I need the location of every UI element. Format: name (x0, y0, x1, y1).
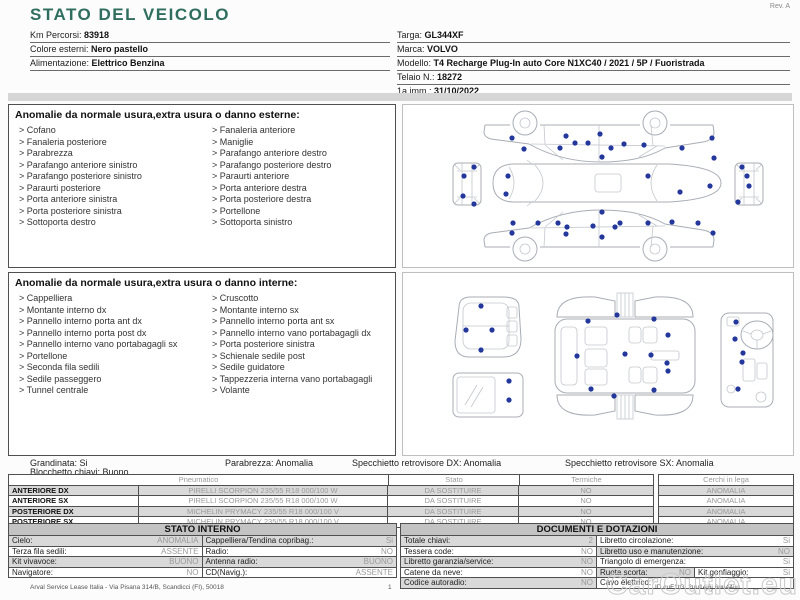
field-value: Nero pastello (91, 44, 148, 54)
anomaly-item: Cruscotto (212, 293, 393, 305)
cell-value: NO (581, 547, 593, 556)
damage-dot (588, 386, 593, 391)
anomaly-item: Porta anteriore destra (212, 183, 393, 195)
tire-cell: NO (519, 486, 653, 496)
footer-company: Arval Service Lease Italia - Via Pisana … (30, 584, 224, 591)
tire-header-cell: Termiche (520, 475, 653, 485)
tire-cell: POSTERIORE DX (9, 507, 139, 517)
anomaly-item: Parabrezza (19, 148, 200, 160)
damage-dot (648, 352, 653, 357)
cell-value: NO (778, 547, 790, 556)
wheels-row: ANOMALIA (659, 485, 793, 496)
cell-label: Kit vivavoce: (12, 557, 57, 566)
wheels-row: ANOMALIA (659, 506, 793, 517)
cell-label: CD(Navig.): (206, 568, 248, 577)
exterior-anomalies-box: Anomalie da normale usura,extra usura o … (8, 104, 396, 268)
damage-dot (489, 327, 494, 332)
field-value: T4 Recharge Plug-In auto Core N1XC40 / 2… (434, 58, 705, 68)
cell-label: Cavo elettrico: (600, 578, 651, 587)
anomaly-item: Cappelliera (19, 293, 200, 305)
tire-header-cell: Pneumatico (9, 475, 389, 485)
field-label: Colore esterni: (30, 44, 91, 54)
damage-dot (535, 220, 540, 225)
damage-dot (710, 230, 715, 235)
interior-state-title: STATO INTERNO (9, 524, 396, 536)
exterior-anomalies-list-left: CofanoFanaleria posterioreParabrezzaPara… (9, 125, 202, 229)
cell-value: ASSENTE (356, 568, 393, 577)
label-value-cell: Kit gonfiaggio:Si (695, 568, 793, 578)
cell-label: Ruota scorta: (600, 568, 648, 577)
damage-dot (677, 189, 682, 194)
tire-cell: MICHELIN PRYMACY 235/55 R18 000/100 V (139, 507, 388, 517)
anomaly-item: Sottoporta destro (19, 217, 200, 229)
revision-label: Rev. A (770, 3, 790, 10)
vehicle-field: Colore esterni: Nero pastello (30, 43, 390, 57)
tire-cell: ANTERIORE SX (9, 496, 139, 506)
damage-dot (617, 220, 622, 225)
vehicle-field: Alimentazione: Elettrico Benzina (30, 57, 390, 71)
cell-value: NO (581, 578, 593, 587)
damage-dot (599, 209, 604, 214)
anomaly-item: Portellone (212, 206, 393, 218)
vehicle-info-left: Km Percorsi: 83918Colore esterni: Nero p… (30, 29, 390, 71)
label-value-cell: Libretto uso e manutenzione:NO (597, 547, 793, 557)
damage-dot (509, 230, 514, 235)
field-value: GL344XF (425, 30, 464, 40)
anomaly-item: Pannello interno vano portabagagli dx (212, 328, 393, 340)
cell-value: NO (581, 568, 593, 577)
cell-label: Kit gonfiaggio: (698, 568, 749, 577)
damage-dot (557, 145, 562, 150)
cell-label: Libretto garanzia/service: (404, 557, 493, 566)
alloy-wheels-table: Cerchi in legaANOMALIAANOMALIAANOMALIAAN… (658, 474, 794, 528)
label-value-cell: Codice autoradio:NO (401, 578, 597, 588)
anomaly-item: Porta anteriore sinistra (19, 194, 200, 206)
field-label: Km Percorsi: (30, 30, 84, 40)
damage-dot (471, 201, 476, 206)
damage-dot (563, 231, 568, 236)
damage-dot (645, 220, 650, 225)
cell-value: Si (783, 568, 790, 577)
damage-dot (651, 387, 656, 392)
status-field: Parabrezza: Anomalia (225, 458, 313, 468)
damage-dot (478, 347, 483, 352)
damage-dot (612, 224, 617, 229)
cell-label: Codice autoradio: (404, 578, 467, 587)
anomaly-item: Pannello interno vano portabagagli sx (19, 339, 200, 351)
tire-cell: ANTERIORE DX (9, 486, 139, 496)
damage-dot (590, 223, 595, 228)
anomaly-item: Paraurti posteriore (19, 183, 200, 195)
cell-label: Radio: (206, 547, 229, 556)
cell-value: 2 (589, 536, 593, 545)
cell-value: BUONO (169, 557, 198, 566)
interior-anomalies-list-right: CruscottoMontante interno sxPannello int… (202, 293, 395, 397)
tire-cell: DA SOSTITUIRE (388, 486, 519, 496)
table-row: Cielo:ANOMALIACappelliera/Tendina coprib… (9, 536, 396, 547)
tire-cell: DA SOSTITUIRE (388, 507, 519, 517)
damage-dot (665, 332, 670, 337)
cell-label: Navigatore: (12, 568, 53, 577)
page-title: STATO DEL VEICOLO (30, 5, 230, 25)
anomaly-item: Parafango posteriore sinistro (19, 171, 200, 183)
interior-damage-diagram (402, 272, 794, 456)
wheels-cell: ANOMALIA (659, 496, 793, 506)
anomaly-item: Parafango posteriore destro (212, 160, 393, 172)
damage-dot (572, 140, 577, 145)
damage-dot (505, 173, 510, 178)
damage-dot (510, 220, 515, 225)
field-value: 83918 (84, 30, 109, 40)
damage-dot (622, 351, 627, 356)
cell-value: ANOMALIA (157, 536, 198, 545)
field-value: Elettrico Benzina (92, 58, 165, 68)
cell-label: Totale chiavi: (404, 536, 450, 545)
label-value-cell: Cappelliera/Tendina copribag.:Si (203, 536, 397, 546)
damage-dot (503, 191, 508, 196)
damage-dot (460, 193, 465, 198)
wheels-cell: ANOMALIA (659, 507, 793, 517)
label-value-cell: Libretto garanzia/service:NO (401, 557, 597, 567)
damage-dot (564, 224, 569, 229)
cell-value: NO (679, 568, 691, 577)
cell-label: Cappelliera/Tendina copribag.: (206, 536, 314, 545)
tire-cell: PIRELLI SCORPION 235/55 R18 000/100 W (139, 486, 388, 496)
damage-dot (461, 173, 466, 178)
anomaly-item: Parafango anteriore sinistro (19, 160, 200, 172)
field-value: 18272 (437, 72, 462, 82)
label-value-cell: Tessera code:NO (401, 547, 597, 557)
cell-label: Triangolo di emergenza: (600, 557, 686, 566)
tire-row: POSTERIORE DXMICHELIN PRYMACY 235/55 R18… (9, 506, 653, 517)
status-field: Specchietto retrovisore DX: Anomalia (352, 458, 501, 468)
table-row: Libretto garanzia/service:NOTriangolo di… (401, 557, 793, 568)
damage-dot (509, 135, 514, 140)
damage-dot (471, 164, 476, 169)
anomaly-item: Pannello interno porta ant dx (19, 316, 200, 328)
cell-label: Antenna radio: (206, 557, 258, 566)
cell-value: Si (783, 536, 790, 545)
vehicle-report-page: Rev. A STATO DEL VEICOLO Km Percorsi: 83… (0, 0, 800, 600)
tire-row: ANTERIORE SXPIRELLI SCORPION 235/55 R18 … (9, 495, 653, 506)
damage-dot (608, 145, 613, 150)
damage-dot (597, 131, 602, 136)
damage-dot (555, 220, 560, 225)
damage-dot (621, 141, 626, 146)
damage-dot (665, 368, 670, 373)
anomaly-item: Fanaleria anteriore (212, 125, 393, 137)
damage-dot (574, 353, 579, 358)
label-value-cell: Kit vivavoce:BUONO (9, 557, 203, 567)
damage-dot (707, 183, 712, 188)
table-row: Catene da neve:NORuota scorta:NOKit gonf… (401, 568, 793, 579)
damage-dot (735, 199, 740, 204)
anomaly-item: Porta posteriore sinistra (19, 206, 200, 218)
exterior-anomalies-title: Anomalie da normale usura,extra usura o … (15, 109, 389, 121)
anomaly-item: Sottoporta sinistro (212, 217, 393, 229)
anomaly-item: Tunnel centrale (19, 385, 200, 397)
interior-anomalies-title: Anomalie da normale usura,extra usura o … (15, 277, 389, 289)
label-value-cell: Libretto circolazione:Si (597, 536, 793, 546)
table-row: Kit vivavoce:BUONOAntenna radio:BUONO (9, 557, 396, 568)
damage-dot (744, 173, 749, 178)
label-value-cell: Ruota scorta:NO (597, 568, 695, 578)
cell-label: Catene da neve: (404, 568, 463, 577)
wheels-row: ANOMALIA (659, 495, 793, 506)
damage-dot (739, 164, 744, 169)
damage-dot (679, 145, 684, 150)
damage-dot (645, 173, 650, 178)
anomaly-item: Montante interno sx (212, 305, 393, 317)
tire-cell: DA SOSTITUIRE (388, 496, 519, 506)
status-field: Specchietto retrovisore SX: Anomalia (565, 458, 714, 468)
cell-value: Si (783, 557, 790, 566)
label-value-cell: Totale chiavi:2 (401, 536, 597, 546)
tire-row: ANTERIORE DXPIRELLI SCORPION 235/55 R18 … (9, 485, 653, 496)
cell-label: Terza fila sedili: (12, 547, 67, 556)
damage-dot (599, 234, 604, 239)
damage-dot (735, 386, 740, 391)
damage-dot (711, 155, 716, 160)
label-value-cell: Triangolo di emergenza:Si (597, 557, 793, 567)
damage-dot (478, 303, 483, 308)
anomaly-item: Schienale sedile post (212, 351, 393, 363)
damage-dot (709, 135, 714, 140)
tire-cell: PIRELLI SCORPION 235/55 R18 000/100 W (139, 496, 388, 506)
anomaly-item: Tappezzeria interna vano portabagagli (212, 374, 393, 386)
damage-dot (611, 393, 616, 398)
interior-damage-dots (463, 303, 745, 402)
interior-state-table: STATO INTERNO Cielo:ANOMALIACappelliera/… (8, 523, 397, 578)
anomaly-item: Fanaleria posteriore (19, 137, 200, 149)
label-value-cell: Terza fila sedili:ASSENTE (9, 547, 203, 557)
damage-dot (506, 397, 511, 402)
damage-dot (585, 140, 590, 145)
field-label: Modello: (397, 58, 434, 68)
cell-value: NO (581, 557, 593, 566)
exterior-damage-dots (460, 131, 751, 239)
field-label: Alimentazione: (30, 58, 92, 68)
label-value-cell: CD(Navig.):ASSENTE (203, 568, 397, 578)
damage-dot (585, 318, 590, 323)
anomaly-item: Sedile passeggero (19, 374, 200, 386)
table-row: Totale chiavi:2Libretto circolazione:Si (401, 536, 793, 547)
vehicle-field: Telaio N.: 18272 (397, 71, 790, 85)
damage-dot (740, 350, 745, 355)
anomaly-item: Portellone (19, 351, 200, 363)
damage-dot (651, 316, 656, 321)
anomaly-item: Parafango anteriore destro (212, 148, 393, 160)
label-value-cell: Antenna radio:BUONO (203, 557, 397, 567)
cell-value: ASSENTE (161, 547, 198, 556)
tire-cell: NO (519, 507, 653, 517)
cell-label: Tessera code: (404, 547, 454, 556)
cell-label: Cielo: (12, 536, 32, 545)
interior-anomalies-box: Anomalie da normale usura,extra usura o … (8, 272, 396, 456)
damage-dot (733, 319, 738, 324)
damage-dot (739, 359, 744, 364)
cell-value: NO (187, 568, 199, 577)
label-value-cell: Catene da neve:NO (401, 568, 597, 578)
tire-cell: NO (519, 496, 653, 506)
wheels-header-cell: Cerchi in lega (659, 475, 793, 485)
cell-value: NO (381, 547, 393, 556)
damage-dot (664, 360, 669, 365)
anomaly-item: Pannello interno porta post dx (19, 328, 200, 340)
cell-label: Libretto uso e manutenzione: (600, 547, 703, 556)
footer-document-id: ID cuF1tG. 2uu14j6j 6uu44uu (655, 584, 740, 591)
table-row: Tessera code:NOLibretto uso e manutenzio… (401, 547, 793, 558)
damage-dot (599, 154, 604, 159)
anomaly-item: Seconda fila sedili (19, 362, 200, 374)
label-value-cell: Radio:NO (203, 547, 397, 557)
field-label: Telaio N.: (397, 72, 437, 82)
anomaly-item: Pannello interno porta ant sx (212, 316, 393, 328)
tire-table: PneumaticoStatoTermicheANTERIORE DXPIREL… (8, 474, 654, 528)
damage-dot (732, 336, 737, 341)
damage-dot (746, 183, 751, 188)
footer-page-number: 1 (388, 584, 392, 591)
field-value: VOLVO (427, 44, 458, 54)
damage-dot (463, 327, 468, 332)
vehicle-field: Km Percorsi: 83918 (30, 29, 390, 43)
documents-equipment-table: DOCUMENTI E DOTAZIONI Totale chiavi:2Lib… (400, 523, 794, 589)
anomaly-item: Volante (212, 385, 393, 397)
cell-label: Libretto circolazione: (600, 536, 673, 545)
tire-header-row: PneumaticoStatoTermiche (9, 475, 653, 485)
tire-header-cell: Stato (389, 475, 520, 485)
vehicle-field: Marca: VOLVO (397, 43, 790, 57)
anomaly-item: Porta posteriore destra (212, 194, 393, 206)
anomaly-item: Porta posteriore sinistra (212, 339, 393, 351)
wheels-header-row: Cerchi in lega (659, 475, 793, 485)
cell-value: BUONO (364, 557, 393, 566)
anomaly-item: Maniglie (212, 137, 393, 149)
damage-dot (521, 146, 526, 151)
anomaly-item: Paraurti anteriore (212, 171, 393, 183)
label-value-cell: Navigatore:NO (9, 568, 203, 578)
wheels-cell: ANOMALIA (659, 486, 793, 496)
vehicle-field: Modello: T4 Recharge Plug-In auto Core N… (397, 57, 790, 71)
vehicle-field: Targa: GL344XF (397, 29, 790, 43)
damage-dot (669, 219, 674, 224)
damage-dot (614, 312, 619, 317)
interior-anomalies-list-left: CappellieraMontante interno dxPannello i… (9, 293, 202, 397)
anomaly-item: Cofano (19, 125, 200, 137)
field-label: Targa: (397, 30, 425, 40)
divider-band (8, 93, 792, 101)
label-value-cell: Cielo:ANOMALIA (9, 536, 203, 546)
documents-equipment-title: DOCUMENTI E DOTAZIONI (401, 524, 793, 536)
exterior-anomalies-list-right: Fanaleria anterioreManiglieParafango ant… (202, 125, 395, 229)
cell-value: Si (386, 536, 393, 545)
damage-dot (641, 142, 646, 147)
table-row: Terza fila sedili:ASSENTERadio:NO (9, 547, 396, 558)
anomaly-item: Sedile guidatore (212, 362, 393, 374)
anomaly-item: Montante interno dx (19, 305, 200, 317)
status-summary-row: Grandinata: SiParabrezza: AnomaliaSpecch… (0, 458, 800, 474)
damage-dot (506, 378, 511, 383)
damage-dot (563, 133, 568, 138)
exterior-damage-diagram (402, 104, 794, 268)
field-label: Marca: (397, 44, 427, 54)
damage-dot (695, 220, 700, 225)
vehicle-info-right: Targa: GL344XFMarca: VOLVOModello: T4 Re… (397, 29, 790, 99)
table-row: Navigatore:NOCD(Navig.):ASSENTE (9, 568, 396, 578)
